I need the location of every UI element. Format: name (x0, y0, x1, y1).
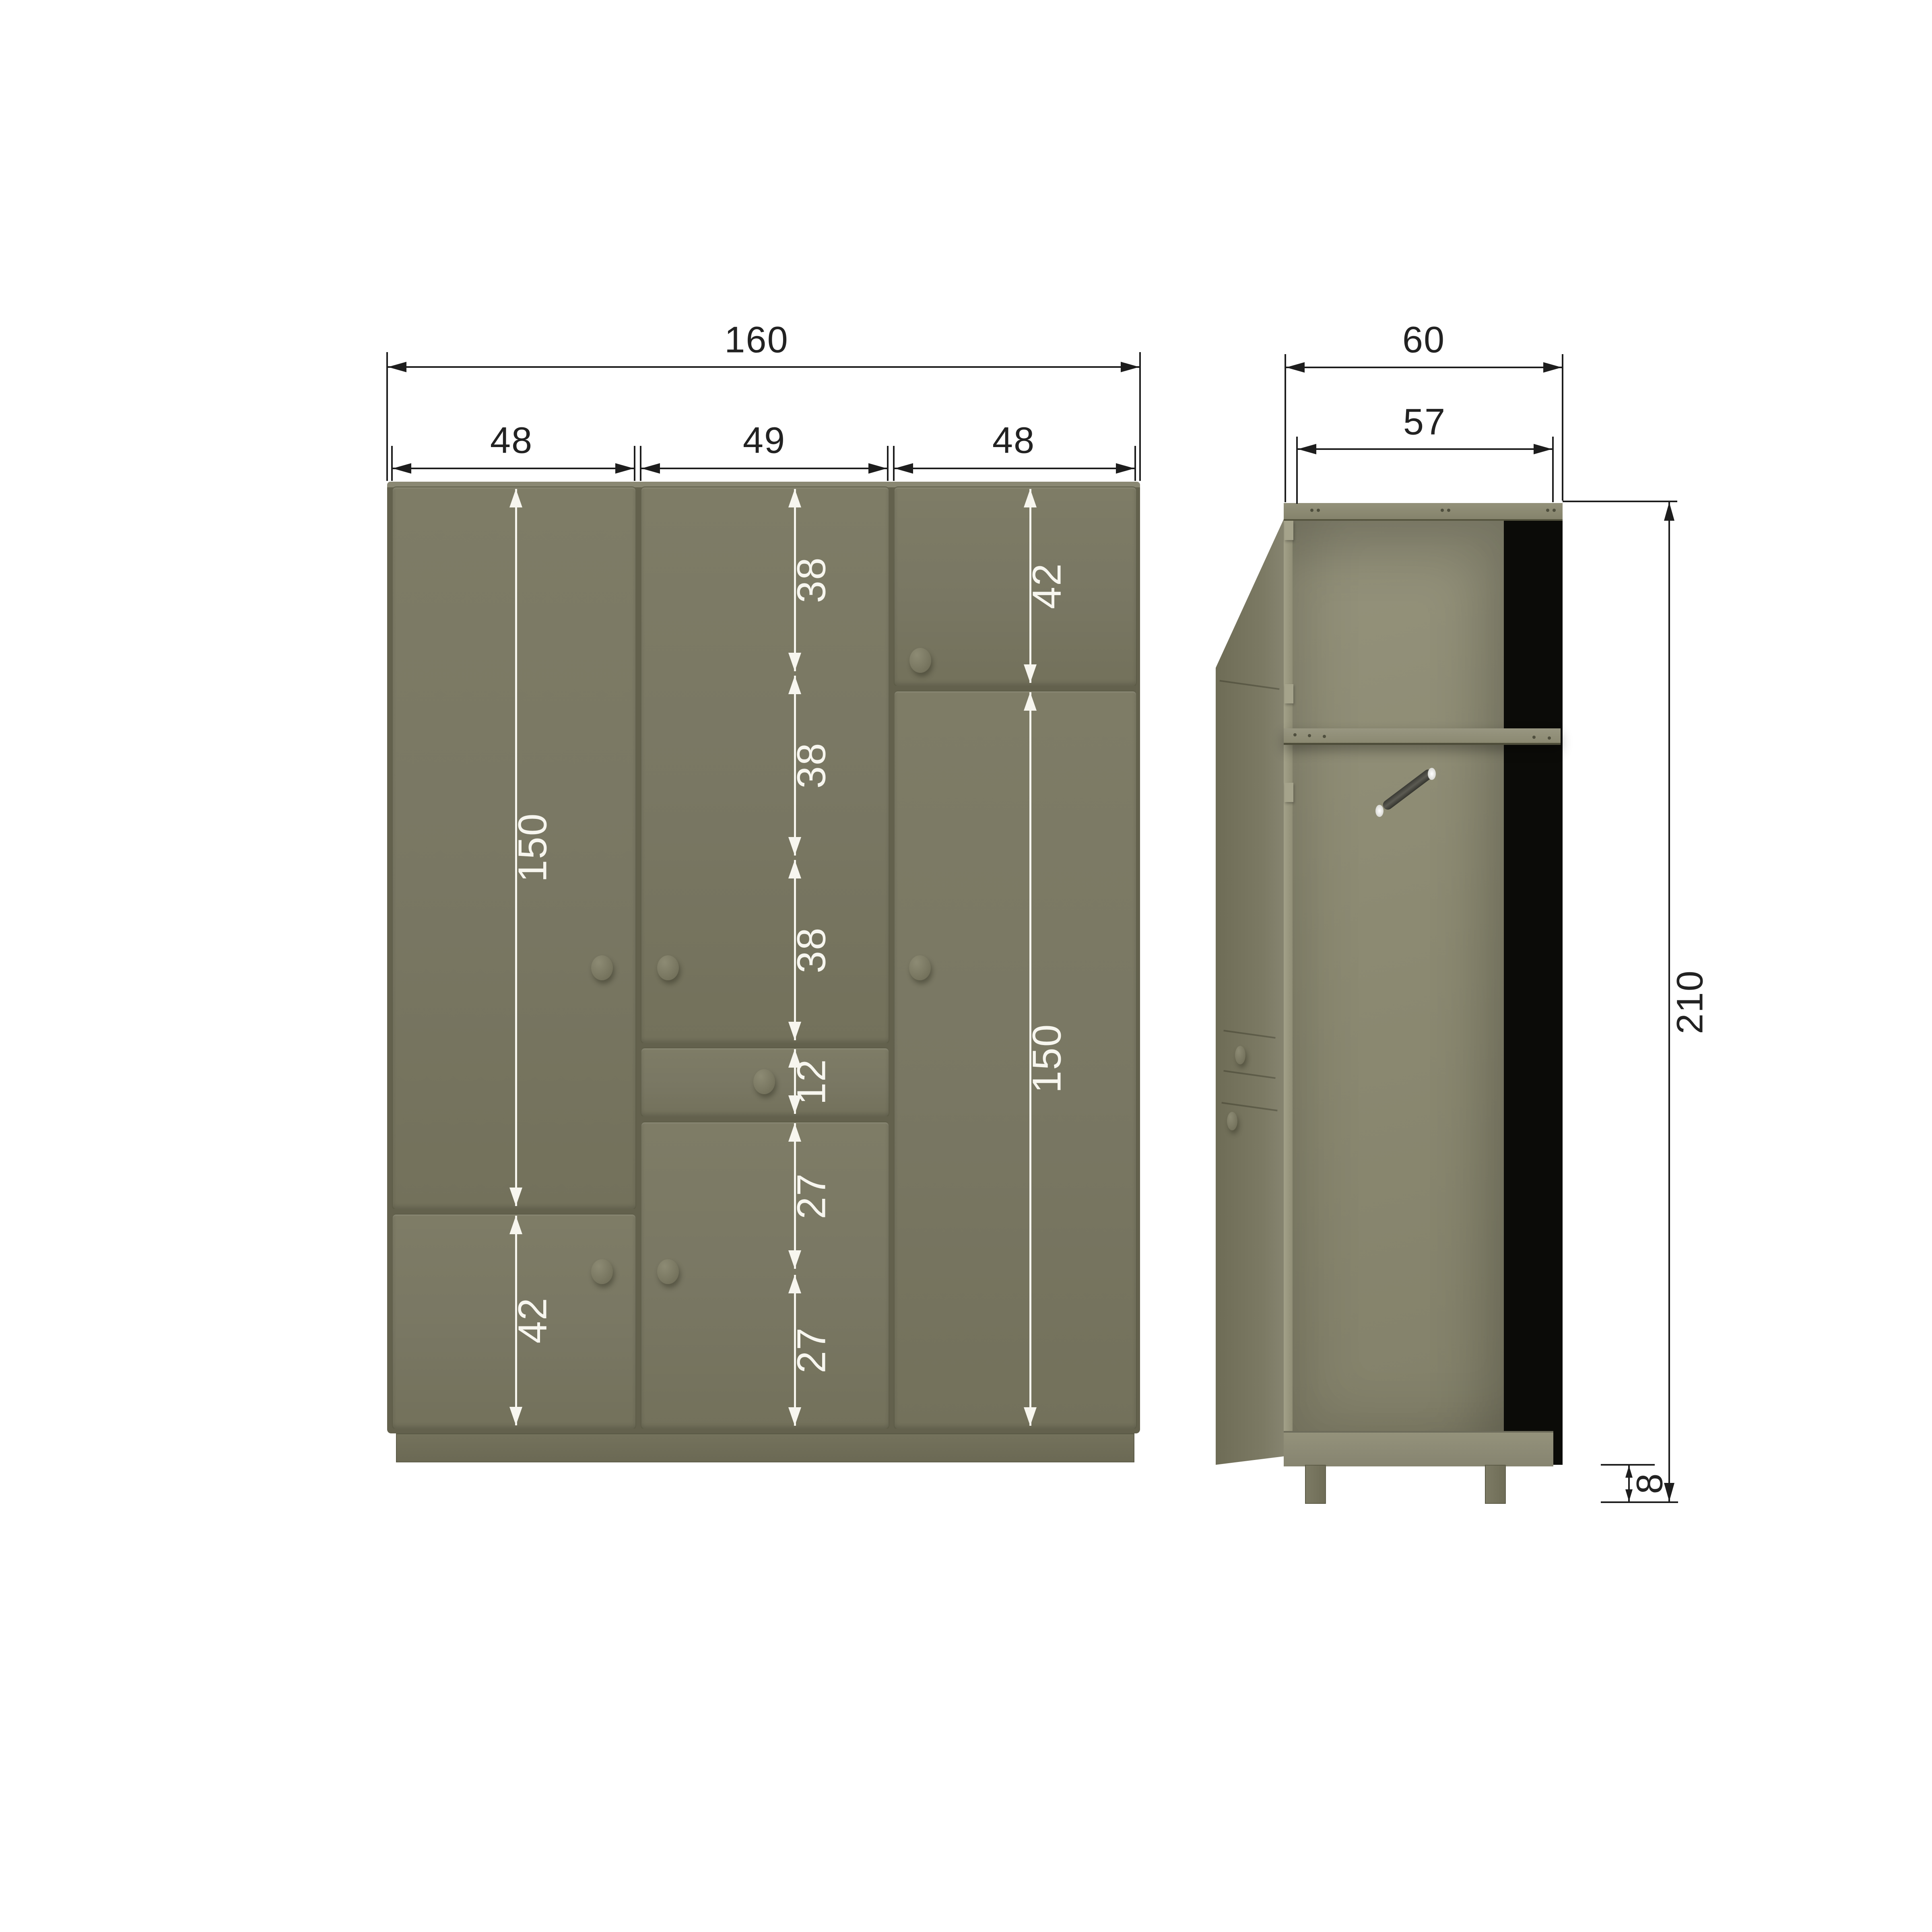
door-middle-tall (641, 487, 889, 1044)
arrowhead-icon (388, 362, 406, 372)
dim-line-section-right (894, 468, 1135, 469)
leg (1305, 1465, 1326, 1504)
shelf-support-tab (1285, 521, 1293, 540)
arrowhead-icon (1024, 1407, 1037, 1426)
extension-line (634, 446, 635, 481)
dim-label-right-tall: 150 (1024, 1024, 1070, 1093)
shelf-support-tab (1285, 684, 1293, 703)
door-knob (909, 955, 931, 980)
extension-line (1285, 354, 1286, 502)
dim-line-inner-depth (1297, 448, 1553, 450)
arrowhead-icon (615, 463, 634, 474)
extension-line (887, 446, 889, 481)
arrowhead-icon (788, 837, 801, 856)
dim-label-overall-height: 210 (1669, 970, 1711, 1034)
door-right-tall (894, 691, 1137, 1429)
dim-line-section-left (392, 468, 635, 469)
bottom-panel (1284, 1431, 1553, 1466)
leg (1485, 1465, 1506, 1504)
arrowhead-icon (788, 860, 801, 878)
arrowhead-icon (1116, 463, 1134, 474)
dim-label-left-bottom: 42 (510, 1297, 556, 1343)
dim-label-section-right: 48 (992, 420, 1035, 462)
dim-line-outer-depth (1285, 367, 1563, 368)
extension-line (1563, 501, 1677, 502)
side-knob-profile (1235, 1046, 1245, 1064)
arrowhead-icon (509, 1188, 522, 1206)
arrowhead-icon (1298, 444, 1316, 454)
arrowhead-icon (788, 1022, 801, 1040)
dowel-hole (1546, 509, 1549, 512)
front-edge-strip (1216, 518, 1284, 1465)
dowel-hole (1548, 736, 1551, 740)
arrowhead-icon (641, 463, 660, 474)
arrowhead-icon (1024, 489, 1037, 507)
dim-label-mid-38c: 38 (789, 927, 835, 973)
interior-side-panel (1293, 519, 1504, 1431)
dim-label-overall-width: 160 (724, 319, 789, 361)
extension-line (1552, 437, 1554, 502)
dowel-hole (1553, 509, 1556, 512)
arrowhead-icon (788, 1275, 801, 1293)
dim-label-right-top: 42 (1024, 563, 1070, 609)
front-stile-inner (1284, 519, 1293, 1431)
dim-label-left-tall: 150 (510, 813, 556, 882)
dim-label-mid-27a: 27 (789, 1173, 835, 1219)
door-knob (591, 1259, 613, 1284)
top-panel (1284, 503, 1563, 521)
dim-label-mid-27b: 27 (789, 1327, 835, 1373)
door-knob (657, 1259, 679, 1284)
dowel-hole (1310, 509, 1313, 512)
dowel-hole (1308, 734, 1311, 737)
shelf-support-tab (1285, 783, 1293, 802)
extension-line (1562, 354, 1563, 501)
drawer-knob (753, 1069, 775, 1094)
arrowhead-icon (1286, 362, 1305, 373)
arrowhead-icon (509, 1216, 522, 1234)
dowel-hole (1532, 736, 1536, 739)
arrowhead-icon (788, 653, 801, 671)
arrowhead-icon (895, 463, 913, 474)
arrowhead-icon (1024, 664, 1037, 683)
extension-line (1139, 352, 1141, 481)
rail-end-cap (1428, 768, 1436, 780)
arrowhead-icon (868, 463, 887, 474)
arrowhead-icon (509, 1407, 522, 1425)
dim-label-outer-depth: 60 (1402, 319, 1445, 361)
dowel-hole (1317, 509, 1320, 512)
dim-label-drawer: 12 (789, 1058, 835, 1105)
arrowhead-icon (1664, 502, 1674, 521)
extension-line (1134, 446, 1136, 481)
dim-label-section-middle: 49 (743, 420, 786, 462)
blueprint-canvas: 160 48 49 48 150 42 38 (0, 0, 1932, 1932)
dim-label-mid-38b: 38 (789, 742, 835, 788)
arrowhead-icon (788, 1123, 801, 1142)
dowel-hole (1447, 509, 1450, 512)
dim-label-inner-depth: 57 (1403, 401, 1446, 443)
arrowhead-icon (1543, 362, 1562, 373)
dim-label-section-left: 48 (490, 420, 533, 462)
arrowhead-icon (1534, 444, 1552, 454)
arrowhead-icon (1121, 362, 1139, 372)
arrowhead-icon (788, 676, 801, 694)
arrowhead-icon (788, 1250, 801, 1269)
dim-line-section-middle (641, 468, 888, 469)
door-knob (909, 648, 931, 673)
arrowhead-icon (1024, 692, 1037, 711)
floor-line (1601, 1501, 1678, 1503)
dowel-hole (1323, 735, 1326, 738)
arrowhead-icon (393, 463, 411, 474)
arrowhead-icon (788, 489, 801, 507)
side-knob-profile (1227, 1112, 1237, 1130)
door-knob (591, 955, 613, 980)
rail-end-cap (1375, 805, 1384, 817)
dim-label-mid-38a: 38 (789, 557, 835, 603)
plinth (396, 1433, 1134, 1462)
dim-line-overall-width (387, 366, 1140, 368)
arrowhead-icon (509, 489, 522, 507)
dowel-hole (1441, 509, 1444, 512)
arrowhead-icon (788, 1407, 801, 1426)
back-panel (1504, 519, 1563, 1465)
door-knob (657, 955, 679, 980)
dowel-hole (1293, 733, 1297, 736)
dim-label-plinth: 8 (1629, 1472, 1671, 1494)
